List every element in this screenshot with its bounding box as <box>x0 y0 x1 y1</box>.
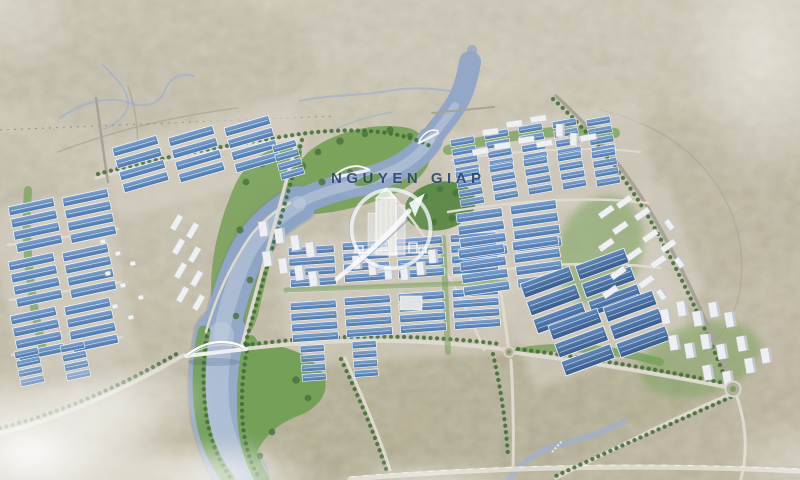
aerial-rendering: NGUYEN GIAP <box>0 0 800 480</box>
masterplan-scene <box>0 0 800 480</box>
